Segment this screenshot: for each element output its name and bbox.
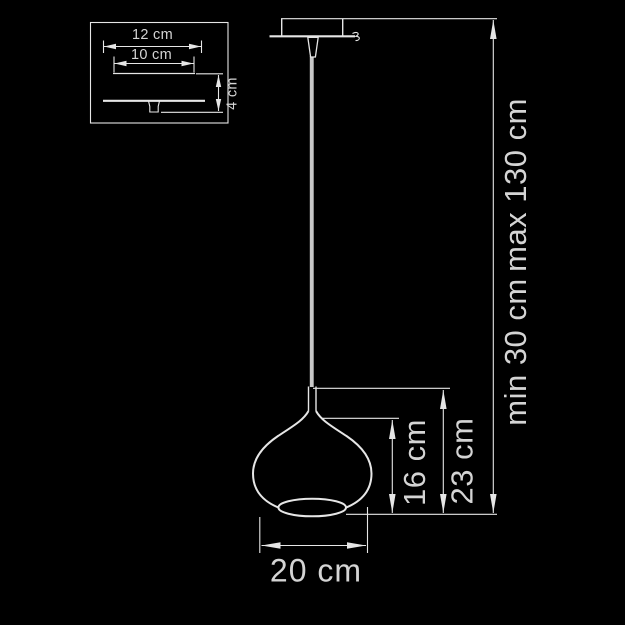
label-16cm: 16 cm [397, 419, 432, 506]
label-12cm: 12 cm [132, 27, 173, 43]
label-23cm: 23 cm [445, 418, 480, 505]
suspension-cord [310, 56, 314, 387]
pendant-dimension-diagram: 12 cm 10 cm 4 cm 20 cm 16 cm 23 cm min 3… [0, 0, 625, 625]
label-4cm: 4 cm [225, 77, 241, 110]
label-max-130cm: max 130 cm [498, 98, 533, 272]
diagram-canvas: 12 cm 10 cm 4 cm 20 cm 16 cm 23 cm min 3… [0, 0, 625, 625]
label-min-30cm: min 30 cm [498, 278, 533, 425]
label-20cm: 20 cm [270, 553, 362, 589]
label-10cm: 10 cm [131, 47, 172, 63]
